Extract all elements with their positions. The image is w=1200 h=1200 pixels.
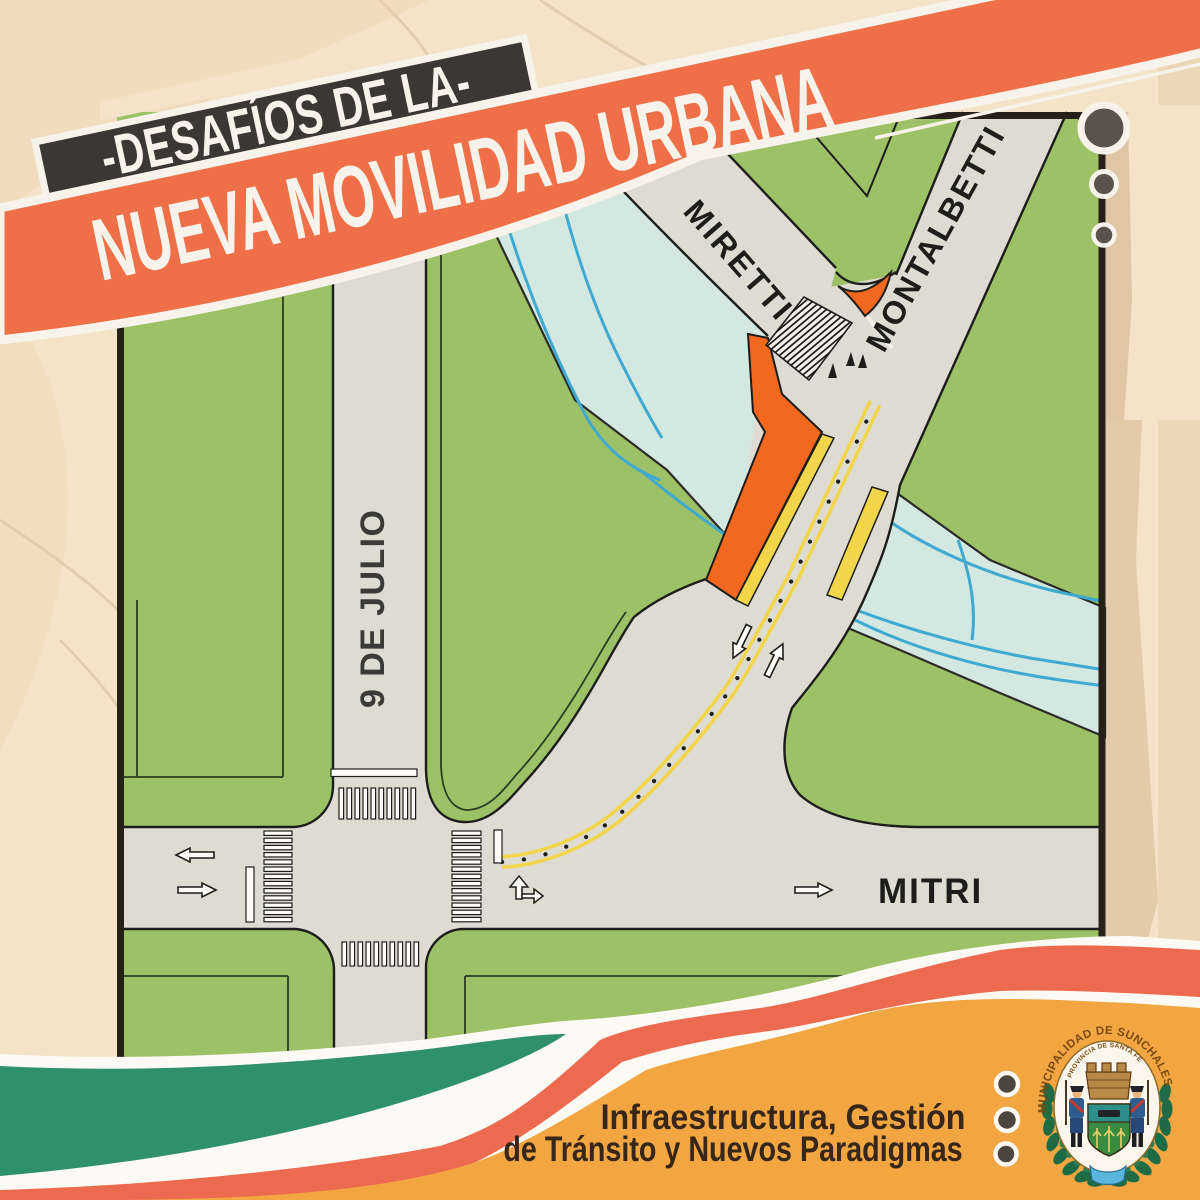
svg-text:9 DE JULIO: 9 DE JULIO — [354, 508, 392, 708]
svg-text:de Tránsito y Nuevos Paradigma: de Tránsito y Nuevos Paradigmas — [503, 1129, 962, 1168]
svg-text:MITRI: MITRI — [878, 872, 983, 911]
